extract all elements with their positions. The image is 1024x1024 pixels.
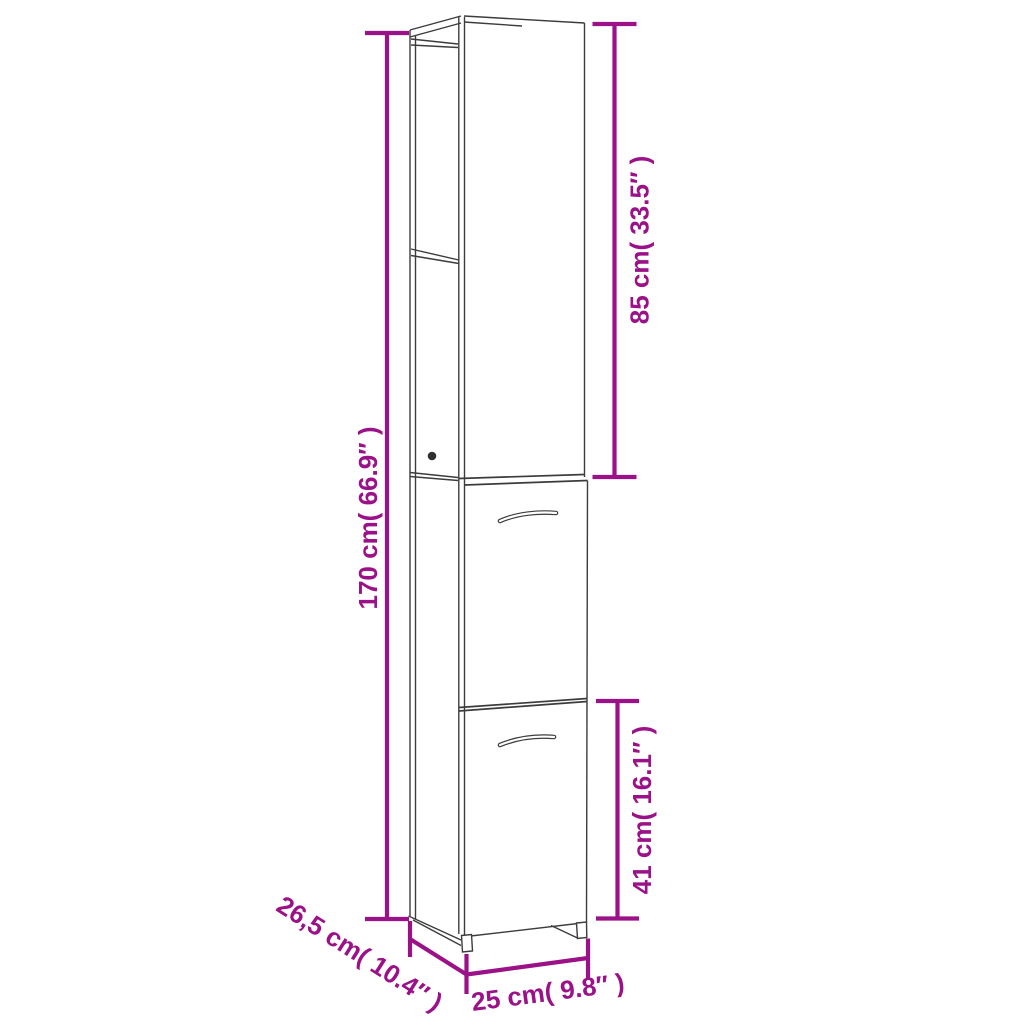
cabinet-top-left-edge-inner: [410, 23, 461, 37]
open-shelf-edge-lower: [411, 256, 459, 264]
cabinet-top-right-edge-outer: [464, 16, 585, 23]
dimension-diagram: 170 cm( 66.9″ ) 85 cm( 33.5″ ) 41 cm( 16…: [0, 0, 1024, 1024]
foot-brace-line: [551, 926, 578, 939]
label-upper-section-height: 85 cm( 33.5″ ): [625, 156, 655, 325]
upper-door-top-edge: [465, 481, 588, 486]
label-total-height: 170 cm( 66.9″ ): [353, 426, 383, 609]
cabinet-top-rail-lower: [411, 45, 458, 48]
label-depth: 26,5 cm( 10.4″ ): [272, 890, 449, 1018]
open-shelf-edge-upper: [411, 249, 459, 260]
diagram-canvas: 170 cm( 66.9″ ) 85 cm( 33.5″ ) 41 cm( 16…: [0, 0, 1024, 1024]
knob-dot: [428, 452, 437, 461]
label-width: 25 cm( 9.8″ ): [469, 967, 626, 1017]
cabinet-bottom-left-edge-outer: [409, 916, 462, 940]
dim-width-line: [467, 939, 589, 979]
cabinet-line-art: [409, 16, 588, 952]
dimension-annotations: [365, 24, 639, 994]
cabinet-top-right-edge-inner: [464, 22, 522, 26]
front-left-foot: [462, 935, 473, 953]
cabinet-bottom-left-edge-inner: [413, 920, 461, 946]
cabinet-bottom-front-edge: [462, 923, 587, 938]
label-lower-door-height: 41 cm( 16.1″ ): [627, 726, 657, 895]
dim-width-main: [467, 958, 589, 975]
front-right-foot: [577, 922, 587, 939]
cabinet-top-rail-upper: [411, 39, 458, 44]
cabinet-top-left-edge-outer: [410, 16, 461, 30]
section-divider-front: [459, 475, 584, 479]
